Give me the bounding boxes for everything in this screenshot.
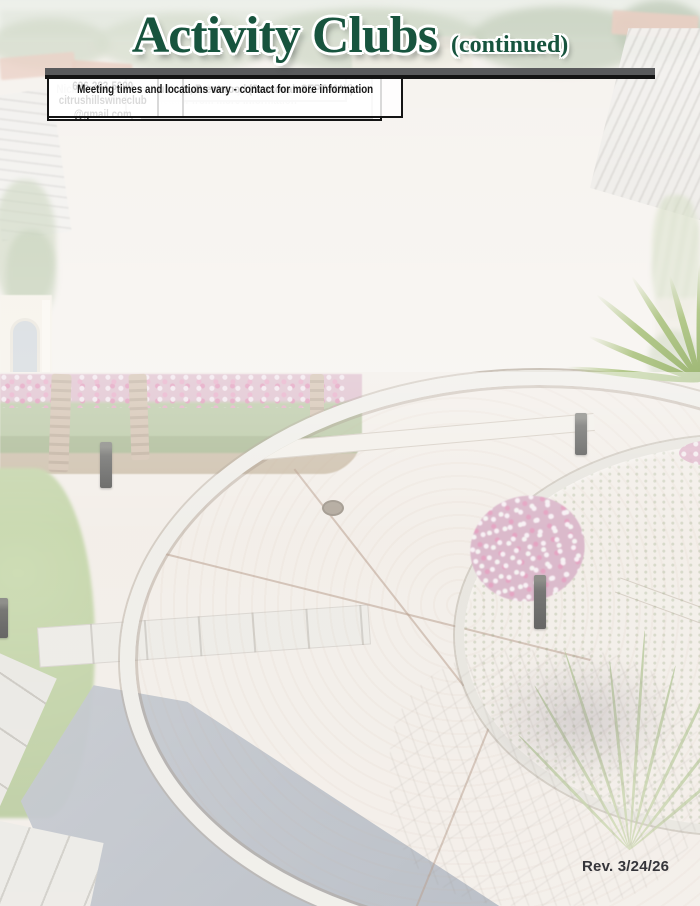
- revision-date: Rev. 3/24/26: [582, 858, 682, 875]
- title-text: Activity Clubs: [132, 6, 437, 65]
- cell-schedule: Meeting times and locations vary - conta…: [47, 77, 403, 118]
- clubs-table: CLUB NAME LEADER PHONE SCHEDULE Rummikub…: [45, 75, 655, 79]
- title-continued-text: (continued): [451, 32, 568, 59]
- palm-frond: [697, 264, 700, 382]
- background-photo: [0, 0, 700, 906]
- page-title: Activity Clubs (continued): [0, 6, 700, 72]
- photo-fade-overlay-bottom: [0, 372, 700, 906]
- flyer-page: Activity Clubs (continued) CLUB NAME LEA…: [0, 0, 700, 906]
